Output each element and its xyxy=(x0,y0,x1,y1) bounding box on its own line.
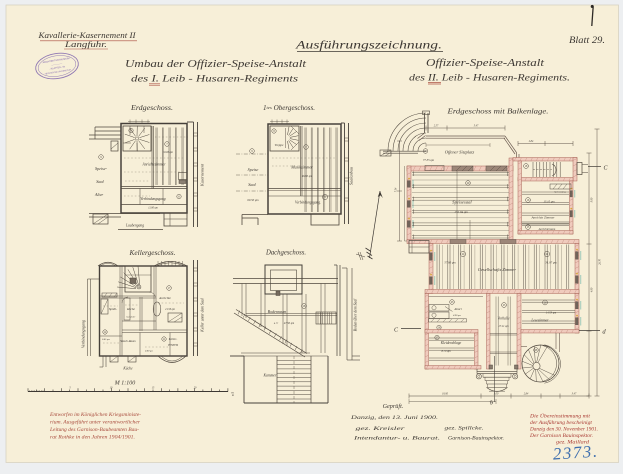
svg-text:Gesellschafts Zimmer: Gesellschafts Zimmer xyxy=(478,267,516,272)
svg-text:11.80 qm: 11.80 qm xyxy=(148,207,158,210)
svg-text:Kellergeschoss.: Kellergeschoss. xyxy=(128,250,175,257)
svg-text:Wasch-Raum: Wasch-Raum xyxy=(120,339,135,343)
svg-text:19.00: 19.00 xyxy=(442,393,449,396)
svg-text:2.84: 2.84 xyxy=(529,140,534,143)
svg-text:Anrichteraum: Anrichteraum xyxy=(538,227,556,231)
svg-text:3.47: 3.47 xyxy=(572,393,577,396)
svg-text:Keller unter dem Saal: Keller unter dem Saal xyxy=(201,298,205,332)
svg-text:Speise: Speise xyxy=(248,167,259,172)
svg-text:Anrichtezimmer: Anrichtezimmer xyxy=(142,163,167,167)
svg-text:31.97 qm: 31.97 qm xyxy=(545,261,557,265)
svg-text:des II. Leib - Husaren-Regime: des II. Leib - Husaren-Regiments. xyxy=(409,74,570,84)
svg-text:Speisesaal: Speisesaal xyxy=(452,200,472,205)
svg-text:Blatt 29.: Blatt 29. xyxy=(569,35,605,45)
svg-text:Treppe: Treppe xyxy=(275,143,284,147)
svg-text:Saal: Saal xyxy=(96,179,104,184)
svg-text:Anrichte Zimmer: Anrichte Zimmer xyxy=(530,216,555,220)
svg-text:Boden über dem Saal: Boden über dem Saal xyxy=(354,299,358,332)
svg-text:Geschirr: Geschirr xyxy=(127,316,136,319)
svg-text:der Ausführung bescheinigt: der Ausführung bescheinigt xyxy=(530,421,593,426)
svg-text:Erdgeschoss.: Erdgeschoss. xyxy=(130,105,174,112)
svg-text:46.80 qm: 46.80 qm xyxy=(302,175,312,178)
svg-text:69.50 qm: 69.50 qm xyxy=(247,198,259,202)
svg-text:2373.: 2373. xyxy=(552,442,599,464)
svg-text:Spühl-: Spühl- xyxy=(109,307,117,311)
svg-text:7.54: 7.54 xyxy=(395,187,398,192)
svg-text:4.90 qm: 4.90 qm xyxy=(453,314,461,317)
svg-text:Leitung des Garnison-Baubeamte: Leitung des Garnison-Baubeamten Bau- xyxy=(49,427,139,433)
svg-text:Anrichte: Anrichte xyxy=(158,296,171,300)
svg-text:17.11 qm: 17.11 qm xyxy=(498,325,508,328)
svg-text:4.80 qm: 4.80 qm xyxy=(145,350,153,353)
svg-text:14.53 qm: 14.53 qm xyxy=(546,312,556,315)
svg-text:47.50 qm: 47.50 qm xyxy=(284,322,294,325)
svg-text:Kasernement: Kasernement xyxy=(200,163,205,187)
svg-text:Kammer: Kammer xyxy=(262,374,277,378)
svg-text:Erdgeschoss mit Balkenlage.: Erdgeschoss mit Balkenlage. xyxy=(446,109,549,116)
svg-text:Bodenraum: Bodenraum xyxy=(268,309,287,314)
svg-text:4.90: 4.90 xyxy=(591,287,594,292)
svg-text:ausgang: ausgang xyxy=(168,343,179,347)
svg-text:Entworfen im Königlichen Krieg: Entworfen im Königlichen Kriegsministe- xyxy=(49,411,141,418)
svg-text:M 1:100: M 1:100 xyxy=(114,381,136,387)
svg-text:Die Übereinstimmung mit: Die Übereinstimmung mit xyxy=(529,414,591,420)
svg-text:küche: küche xyxy=(127,307,135,311)
svg-text:rat Rothke in den Jahren 1904/: rat Rothke in den Jahren 1904/1901. xyxy=(50,435,135,441)
svg-text:132.04 qm: 132.04 qm xyxy=(454,210,468,214)
svg-text:Umbau der Offizier-Speise-Anst: Umbau der Offizier-Speise-Anstalt xyxy=(125,58,307,70)
svg-text:des I. Leib - Husaren-Regimen: des I. Leib - Husaren-Regiments xyxy=(131,75,298,85)
svg-text:Alter: Alter xyxy=(94,192,104,197)
svg-text:Dachgeschoss.: Dachgeschoss. xyxy=(265,250,306,257)
svg-text:Verbindungsgang: Verbindungsgang xyxy=(140,197,165,201)
svg-text:Geprüft.: Geprüft. xyxy=(383,403,404,410)
svg-text:Vorhalle: Vorhalle xyxy=(497,317,510,321)
svg-text:21.50 qm: 21.50 qm xyxy=(165,308,175,311)
svg-text:Laubengang: Laubengang xyxy=(125,224,144,228)
svg-text:3.00: 3.00 xyxy=(494,393,499,396)
svg-text:Kavallerie-Kasernement II: Kavallerie-Kasernement II xyxy=(37,31,135,40)
svg-text:Saal: Saal xyxy=(248,182,256,187)
svg-text:Der Garnison Bauinspektor.: Der Garnison Bauinspektor. xyxy=(529,434,593,439)
svg-text:Abort: Abort xyxy=(453,307,461,311)
svg-text:Offener Sitzplatz: Offener Sitzplatz xyxy=(445,150,475,155)
svg-text:6.45 qm: 6.45 qm xyxy=(102,338,110,341)
svg-text:57.60 qm: 57.60 qm xyxy=(444,261,456,265)
svg-text:Offizier-Speise-Anstalt: Offizier-Speise-Anstalt xyxy=(426,57,545,69)
svg-text:1tes Obergeschoss.: 1tes Obergeschoss. xyxy=(263,105,315,113)
svg-text:Verbindungsgang.: Verbindungsgang. xyxy=(295,201,321,205)
svg-text:5.47: 5.47 xyxy=(474,125,479,128)
svg-text:Ausführungszeichnung.: Ausführungszeichnung. xyxy=(295,40,442,52)
svg-text:gez. Spillcke.: gez. Spillcke. xyxy=(445,426,484,432)
svg-text:Intendantur- u. Baurat.: Intendantur- u. Baurat. xyxy=(352,437,440,442)
svg-text:13.10 qm: 13.10 qm xyxy=(543,200,555,204)
svg-text:Garnison-Bauinspektor.: Garnison-Bauinspektor. xyxy=(448,437,504,442)
svg-text:Verbindungsgang: Verbindungsgang xyxy=(81,320,86,348)
svg-text:Küche: Küche xyxy=(122,367,133,371)
svg-text:26.70: 26.70 xyxy=(599,258,602,265)
svg-text:32.80 qm: 32.80 qm xyxy=(163,151,173,154)
svg-text:rium. Ausgeführt unter verantw: rium. Ausgeführt unter verantwortlicher xyxy=(50,419,141,426)
svg-text:77.35 qm: 77.35 qm xyxy=(423,158,435,162)
svg-text:Musikzimmer: Musikzimmer xyxy=(290,165,313,170)
svg-text:Speise-: Speise- xyxy=(95,166,108,171)
svg-text:2.57: 2.57 xyxy=(434,125,439,128)
svg-text:2.84: 2.84 xyxy=(524,393,529,396)
svg-text:Danzig den 30. November 1901.: Danzig den 30. November 1901. xyxy=(529,428,598,433)
svg-text:Keller-: Keller- xyxy=(168,337,177,341)
svg-text:Saalanbau: Saalanbau xyxy=(349,167,354,185)
svg-text:8.90: 8.90 xyxy=(591,197,594,202)
svg-text:Langfuhr.: Langfuhr. xyxy=(64,40,107,49)
svg-text:Kleiderablage: Kleiderablage xyxy=(440,341,462,345)
svg-text:Lesezimmer: Lesezimmer xyxy=(530,319,549,323)
svg-text:8.70 qm: 8.70 qm xyxy=(441,350,450,353)
svg-text:gez. Kreisler: gez. Kreisler xyxy=(356,426,406,432)
svg-text:Danzig, den 13. Juni 1900.: Danzig, den 13. Juni 1900. xyxy=(350,415,438,421)
